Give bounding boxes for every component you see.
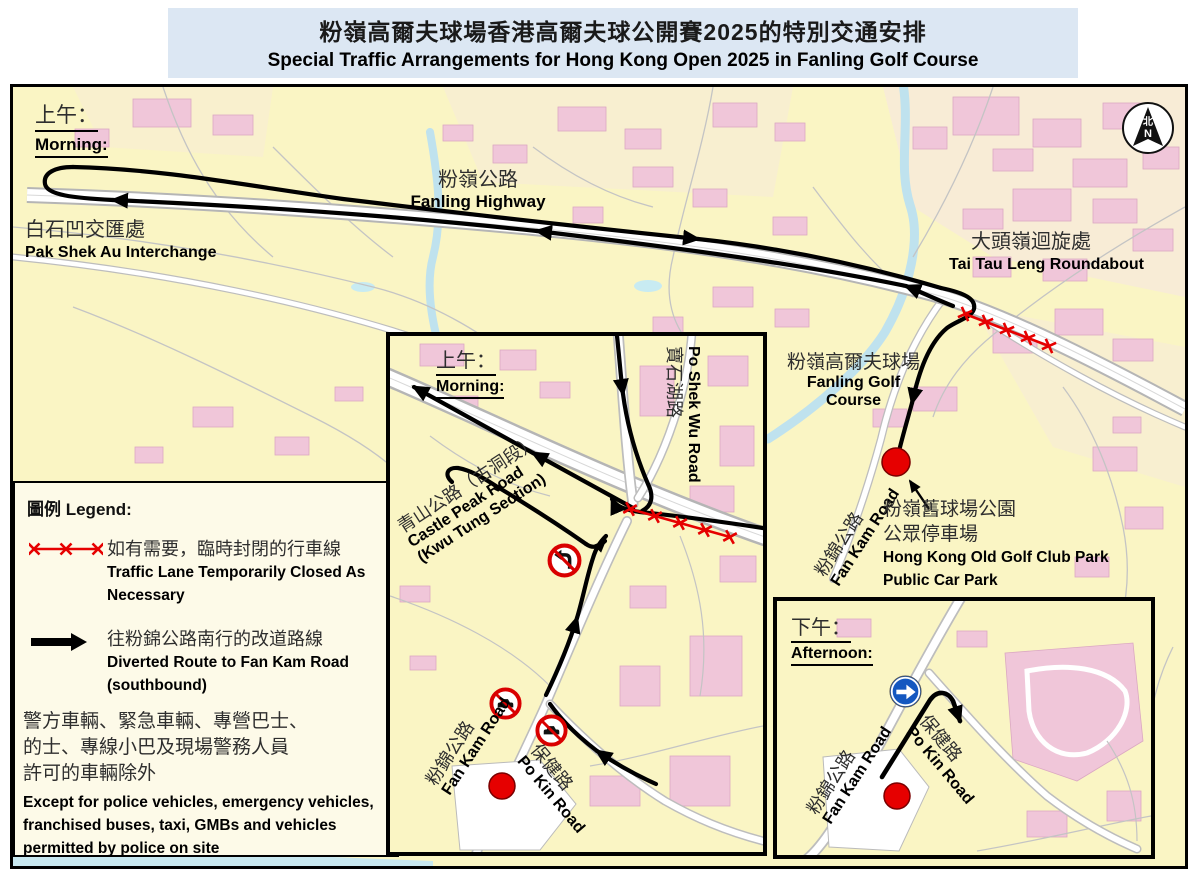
pak-shek-au-label: 白石凹交匯處 Pak Shek Au Interchange bbox=[25, 213, 216, 262]
po-shek-wu-en: Po Shek Wu Road bbox=[684, 346, 702, 483]
tai-tau-leng-label: 大頭嶺迴旋處 Tai Tau Leng Roundabout bbox=[949, 225, 1144, 274]
golf-course-label: 粉嶺高爾夫球場 Fanling Golf Course bbox=[771, 347, 936, 410]
inset-a-period-zh: 下午： bbox=[791, 611, 851, 643]
fanling-highway-zh: 粉嶺公路 bbox=[398, 163, 558, 192]
car-park-zh2: 公眾停車場 bbox=[883, 522, 1109, 547]
car-park-en1: Hong Kong Old Golf Club Park bbox=[883, 547, 1109, 569]
golf-course-en2: Course bbox=[771, 392, 936, 410]
golf-course-en1: Fanling Golf bbox=[771, 374, 936, 392]
legend-item2-en: Diverted Route to Fan Kam Road (southbou… bbox=[107, 651, 375, 698]
car-park-en2: Public Car Park bbox=[883, 570, 1109, 592]
inset-morning-map: 上午： Morning: Po Shek Wu Road 寶石湖路 青山公路（古… bbox=[386, 332, 767, 856]
inset-m-period-zh: 上午： bbox=[436, 344, 496, 376]
car-park-label: 粉嶺舊球場公園 公眾停車場 Hong Kong Old Golf Club Pa… bbox=[883, 497, 1109, 592]
inset-m-red-dot-marker bbox=[489, 773, 515, 799]
main-period-zh: 上午： bbox=[35, 99, 98, 132]
exception-en: Except for police vehicles, emergency ve… bbox=[23, 791, 391, 861]
main-period-en: Morning: bbox=[35, 135, 108, 158]
inset-a-period-en: Afternoon: bbox=[791, 645, 873, 666]
legend-item2-zh: 往粉錦公路南行的改道路線 bbox=[107, 625, 323, 651]
diverted-route-legend-icon bbox=[29, 631, 91, 653]
legend-panel: 圖例 Legend: 如有需要，臨時封閉的行車線 Traffic Lane Te… bbox=[13, 481, 399, 857]
compass-north-zh: 北 bbox=[1143, 115, 1153, 128]
pak-shek-au-en: Pak Shek Au Interchange bbox=[25, 244, 216, 262]
inset-m-period-en: Morning: bbox=[436, 378, 504, 399]
title-bar: 粉嶺高爾夫球場香港高爾夫球公開賽2025的特別交通安排 Special Traf… bbox=[168, 8, 1078, 78]
car-park-zh1: 粉嶺舊球場公園 bbox=[883, 497, 1109, 522]
fanling-highway-en: Fanling Highway bbox=[398, 192, 558, 212]
north-compass-icon: 北 N bbox=[1123, 103, 1173, 153]
exception-zh1: 警方車輛、緊急車輛、專營巴士、 bbox=[23, 709, 391, 735]
legend-heading: 圖例 Legend: bbox=[27, 495, 132, 520]
po-shek-wu-zh: 寶石湖路 bbox=[664, 346, 684, 483]
legend-item1-en: Traffic Lane Temporarily Closed As Neces… bbox=[107, 561, 389, 608]
exception-zh2: 的士、專線小巴及現場警務人員 bbox=[23, 735, 391, 761]
pak-shek-au-zh: 白石凹交匯處 bbox=[25, 213, 216, 242]
inset-afternoon-map: 下午： Afternoon: 粉錦公路 Fan Kam Road 保健路 Po … bbox=[773, 597, 1155, 859]
car-park-red-dot-marker bbox=[882, 448, 910, 476]
tai-tau-leng-en: Tai Tau Leng Roundabout bbox=[949, 256, 1144, 274]
closed-lane-legend-icon bbox=[29, 539, 103, 559]
no-left-turn-sign-icon bbox=[550, 546, 580, 576]
page-title-zh: 粉嶺高爾夫球場香港高爾夫球公開賽2025的特別交通安排 bbox=[168, 13, 1078, 47]
po-shek-wu-road-label: Po Shek Wu Road 寶石湖路 bbox=[664, 346, 702, 483]
legend-exception: 警方車輛、緊急車輛、專營巴士、 的士、專線小巴及現場警務人員 許可的車輛除外 E… bbox=[23, 709, 391, 860]
inset-m-period-label: 上午： Morning: bbox=[436, 344, 504, 399]
traffic-arrangement-poster: 粉嶺高爾夫球場香港高爾夫球公開賽2025的特別交通安排 Special Traf… bbox=[0, 0, 1197, 879]
fanling-highway-label: 粉嶺公路 Fanling Highway bbox=[398, 163, 558, 212]
main-period-label: 上午： Morning: bbox=[35, 99, 108, 158]
main-map: 北 N 上午： Morning: 白石凹交匯處 Pak Shek Au Inte… bbox=[10, 84, 1188, 869]
inset-a-period-label: 下午： Afternoon: bbox=[791, 611, 873, 666]
turn-right-mandatory-sign-icon bbox=[890, 676, 921, 707]
page-title-en: Special Traffic Arrangements for Hong Ko… bbox=[168, 50, 1078, 72]
golf-course-zh: 粉嶺高爾夫球場 bbox=[771, 347, 936, 374]
tai-tau-leng-zh: 大頭嶺迴旋處 bbox=[971, 225, 1144, 254]
compass-north-en: N bbox=[1144, 128, 1152, 140]
exception-zh3: 許可的車輛除外 bbox=[23, 761, 391, 787]
legend-item1-zh: 如有需要，臨時封閉的行車線 bbox=[107, 535, 341, 561]
inset-a-red-dot-marker bbox=[884, 783, 910, 809]
